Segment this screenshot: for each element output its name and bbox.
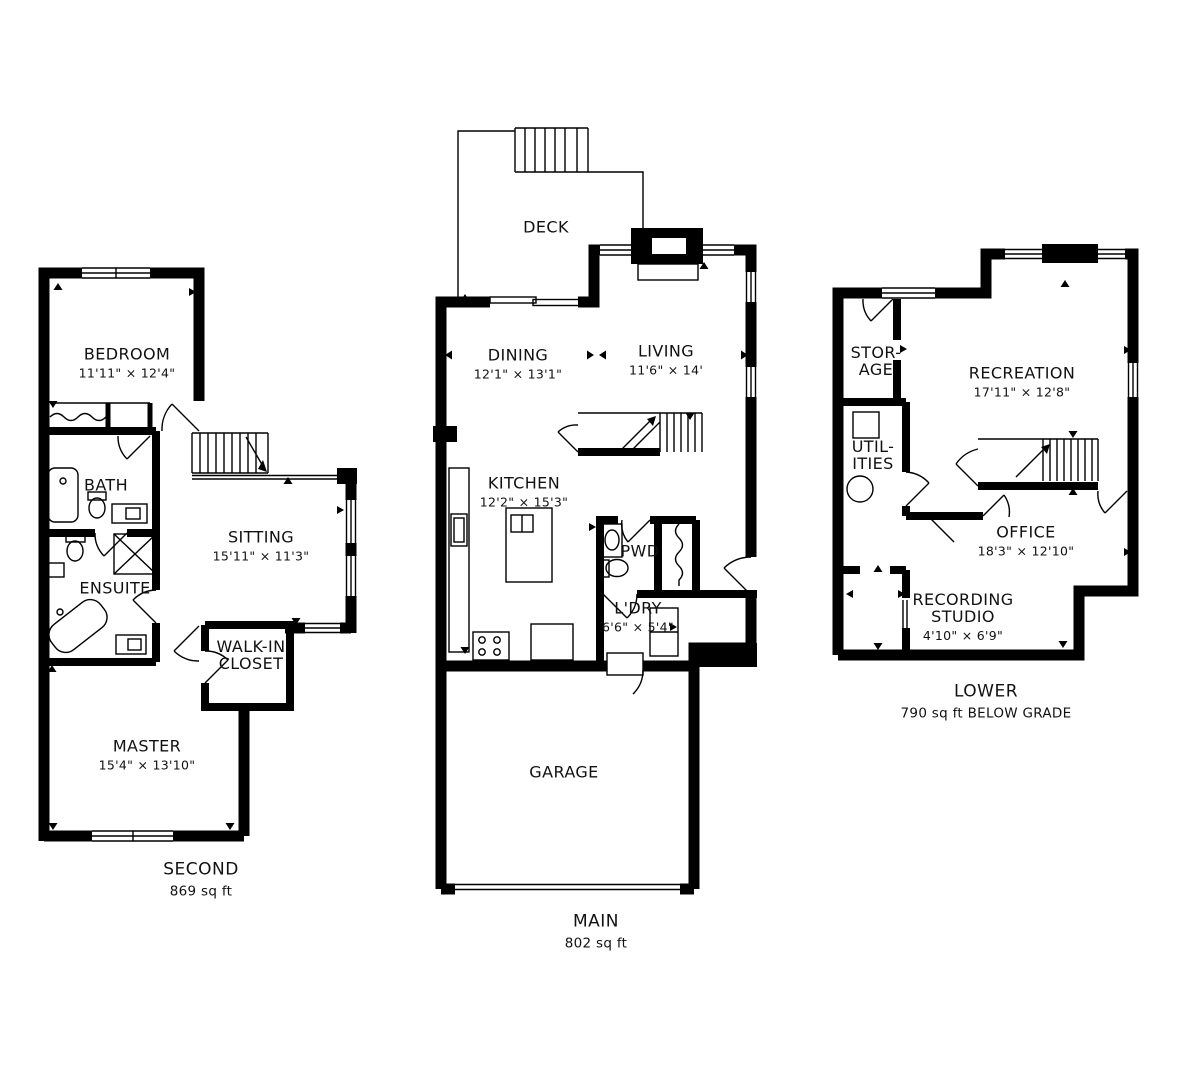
room-label-living: LIVING 11'6" × 14' <box>629 344 703 377</box>
room-label-pwd: PWD <box>621 544 660 561</box>
room-label-master: MASTER 15'4" × 13'10" <box>99 739 196 772</box>
room-name: BEDROOM <box>84 347 170 364</box>
floor-name: LOWER <box>954 683 1018 701</box>
room-label-walk-in-closet: WALK-IN CLOSET <box>217 639 286 673</box>
sliding-door-icon <box>490 297 536 303</box>
toilet-icon <box>66 534 85 561</box>
room-label-storage: STOR- AGE <box>851 345 902 379</box>
door-icon <box>607 653 643 675</box>
room-name: DECK <box>523 220 569 237</box>
toilet-icon <box>88 492 106 518</box>
kitchen-island <box>506 508 552 582</box>
room-name: SITTING <box>228 530 294 547</box>
room-label-office: OFFICE 18'3" × 12'10" <box>978 525 1075 558</box>
sink-icon <box>116 635 146 654</box>
toilet-icon <box>602 560 628 578</box>
room-name: BATH <box>84 478 128 495</box>
fireplace-icon <box>631 228 703 280</box>
floor-area: 869 sq ft <box>170 884 232 898</box>
room-label-utilities: UTIL- ITIES <box>852 439 895 473</box>
floor-caption-second: SECOND 869 sq ft <box>163 861 239 898</box>
floor-plan-page: BEDROOM 11'11" × 12'4" BATH SITTING 15'1… <box>0 0 1181 1080</box>
floor-area: 802 sq ft <box>565 936 627 950</box>
sink-icon <box>112 504 147 523</box>
room-name: WALK-IN CLOSET <box>217 639 286 673</box>
room-dims: 15'4" × 13'10" <box>99 758 196 771</box>
room-dims: 12'1" × 13'1" <box>474 367 562 380</box>
stairs-icon <box>978 439 1098 486</box>
room-label-ensuite: ENSUITE <box>79 581 150 598</box>
room-name: LIVING <box>638 344 694 361</box>
room-name: MASTER <box>113 739 181 756</box>
room-name: UTIL- ITIES <box>852 439 895 473</box>
room-label-kitchen: KITCHEN 12'2" × 15'3" <box>480 476 568 509</box>
floor-caption-main: MAIN 802 sq ft <box>565 913 627 950</box>
room-dims: 11'11" × 12'4" <box>79 366 176 379</box>
room-name: KITCHEN <box>488 476 560 493</box>
room-dims: 4'10" × 6'9" <box>923 629 1003 642</box>
room-label-recording-studio: RECORDING STUDIO 4'10" × 6'9" <box>912 592 1013 642</box>
room-name: ENSUITE <box>79 581 150 598</box>
room-label-sitting: SITTING 15'11" × 11'3" <box>213 530 310 563</box>
room-name: OFFICE <box>996 525 1055 542</box>
floor-area: 790 sq ft BELOW GRADE <box>901 706 1072 720</box>
stairs-icon <box>192 433 268 473</box>
room-label-dining: DINING 12'1" × 13'1" <box>474 348 562 381</box>
shower-icon <box>114 534 156 574</box>
room-dims: 18'3" × 12'10" <box>978 544 1075 557</box>
stairs-icon <box>515 128 588 172</box>
kitchen-counter <box>449 468 469 652</box>
floor-name: MAIN <box>573 913 619 931</box>
room-dims: 6'6" × 5'4" <box>602 620 674 633</box>
stove-icon <box>473 632 509 660</box>
bathtub-icon <box>48 468 78 522</box>
water-heater-icon <box>847 476 873 502</box>
dishwasher-icon <box>531 624 573 660</box>
floor-caption-lower: LOWER 790 sq ft BELOW GRADE <box>901 683 1072 720</box>
sink-icon <box>602 524 622 557</box>
room-name: L'DRY <box>614 601 662 618</box>
furnace-icon <box>853 412 879 438</box>
room-label-bath: BATH <box>84 478 128 495</box>
room-label-bedroom: BEDROOM 11'11" × 12'4" <box>79 347 176 380</box>
room-dims: 17'11" × 12'8" <box>974 385 1071 398</box>
room-dims: 15'11" × 11'3" <box>213 549 310 562</box>
stairs-icon <box>578 413 702 452</box>
room-name: RECORDING STUDIO <box>912 592 1013 626</box>
sink-icon <box>47 563 64 577</box>
room-label-garage: GARAGE <box>529 765 598 782</box>
room-name: RECREATION <box>969 366 1075 383</box>
room-label-laundry: L'DRY 6'6" × 5'4" <box>602 601 674 634</box>
room-name: PWD <box>621 544 660 561</box>
room-dims: 12'2" × 15'3" <box>480 495 568 508</box>
room-name: DINING <box>488 348 549 365</box>
bathtub-icon <box>44 594 113 657</box>
room-name: GARAGE <box>529 765 598 782</box>
room-dims: 11'6" × 14' <box>629 363 703 376</box>
floor-name: SECOND <box>163 861 239 879</box>
room-name: STOR- AGE <box>851 345 902 379</box>
room-label-recreation: RECREATION 17'11" × 12'8" <box>969 366 1075 399</box>
room-label-deck: DECK <box>523 220 569 237</box>
